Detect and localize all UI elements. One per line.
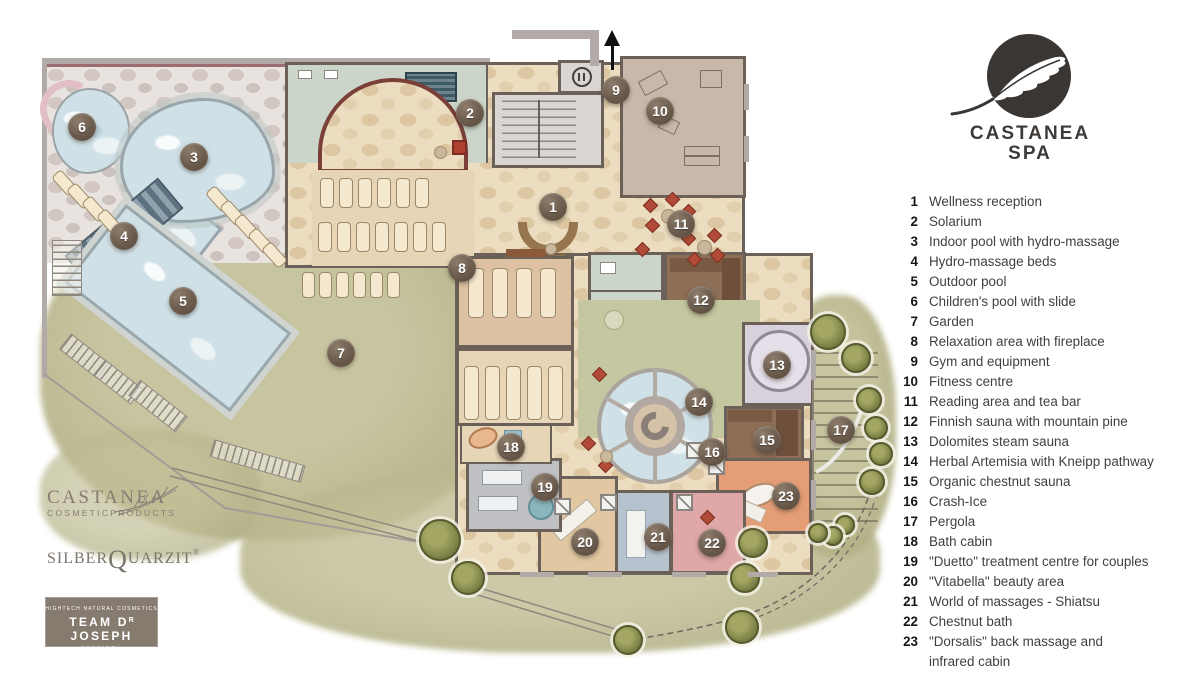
legend-item-label: Reading area and tea bar [929,392,1081,412]
plan-marker-18: 18 [497,433,525,461]
legend-item-number: 21 [898,592,918,612]
legend-item-21: 21World of massages - Shiatsu [898,592,1193,612]
legend-item-label: Hydro-massage beds [929,252,1056,272]
plan-marker-17: 17 [827,416,855,444]
silber-part1: SILBER [47,550,108,567]
legend-item-1: 1Wellness reception [898,192,1193,212]
registered-mark: ® [193,547,201,557]
legend-item-number: 23 [898,632,918,652]
plan-marker-14: 14 [685,388,713,416]
legend-item-label: Pergola [929,512,975,532]
team-main-suffix: JOSEPH [71,629,133,643]
legend-item-12: 12Finnish sauna with mountain pine [898,412,1193,432]
legend-item-number: 1 [898,192,918,212]
plan-marker-1: 1 [539,193,567,221]
plan-marker-16: 16 [698,438,726,466]
plan-marker-21: 21 [644,523,672,551]
legend-item-number: 19 [898,552,918,572]
plan-marker-23: 23 [772,482,800,510]
silber-part2: UARZIT [128,550,193,567]
plan-markers: 1234567891011121314151617181920212223 [0,0,900,675]
legend-item-18: 18Bath cabin [898,532,1193,552]
legend-item-label: Organic chestnut sauna [929,472,1070,492]
plan-marker-8: 8 [448,254,476,282]
castanea-cosmetics-title: CASTANEA [47,487,167,508]
legend-item-label: "Vitabella" beauty area [929,572,1064,592]
brand-title: CASTANEA SPA [898,124,1162,164]
legend-item-13: 13Dolomites steam sauna [898,432,1193,452]
legend-item-label: Dolomites steam sauna [929,432,1069,452]
legend-item-8: 8Relaxation area with fireplace [898,332,1193,352]
plan-marker-13: 13 [763,351,791,379]
legend-item-number: 2 [898,212,918,232]
castanea-cosmetics-logo: CASTANEA [47,487,167,509]
plan-marker-10: 10 [646,97,674,125]
legend-item-11: 11Reading area and tea bar [898,392,1193,412]
legend-item-14: 14Herbal Artemisia with Kneipp pathway [898,452,1193,472]
team-main-sup: R [129,617,134,624]
legend-item-label: Crash-Ice [929,492,987,512]
plan-marker-20: 20 [571,528,599,556]
castanea-cosmetics-subtitle-text: COSMETICPRODUCTS [47,508,176,518]
legend-item-6: 6Children's pool with slide [898,292,1193,312]
plan-marker-22: 22 [698,529,726,557]
legend-item-label: Fitness centre [929,372,1013,392]
legend-item-label: Bath cabin [929,532,992,552]
legend-item-17: 17Pergola [898,512,1193,532]
legend-item-label: Indoor pool with hydro-massage [929,232,1120,252]
legend-item-number: 3 [898,232,918,252]
brand-line1: CASTANEA [970,123,1090,144]
legend-item-9: 9Gym and equipment [898,352,1193,372]
castanea-spa-logo [944,30,1114,126]
legend-item-label: Chestnut bath [929,612,1012,632]
legend-item-number: 11 [898,392,918,412]
team-main-prefix: TEAM D [69,615,128,629]
legend-item-label: World of massages - Shiatsu [929,592,1100,612]
legend-item-number: 17 [898,512,918,532]
legend-item-number: 14 [898,452,918,472]
legend-item-19: 19"Duetto" treatment centre for couples [898,552,1193,572]
plan-marker-6: 6 [68,113,96,141]
plan-marker-12: 12 [687,286,715,314]
legend-item-15: 15Organic chestnut sauna [898,472,1193,492]
plan-marker-4: 4 [110,222,138,250]
legend-item-label: Outdoor pool [929,272,1006,292]
legend-item-22: 22Chestnut bath [898,612,1193,632]
legend-item-20: 20"Vitabella" beauty area [898,572,1193,592]
brand-line2: SPA [1008,143,1052,164]
plan-marker-15: 15 [753,426,781,454]
legend-item-number: 16 [898,492,918,512]
legend-item-label: Relaxation area with fireplace [929,332,1105,352]
legend-item-label: Finnish sauna with mountain pine [929,412,1128,432]
legend-item-3: 3Indoor pool with hydro-massage [898,232,1193,252]
legend-item-number: 5 [898,272,918,292]
legend-list: 1Wellness reception2Solarium3Indoor pool… [898,192,1193,672]
legend-item-label: Herbal Artemisia with Kneipp pathway [929,452,1154,472]
team-line3: SÜDTIROL [45,646,158,652]
legend-item-2: 2Solarium [898,212,1193,232]
legend-item-label: "Dorsalis" back massage andinfrared cabi… [929,632,1103,672]
legend-item-label: Children's pool with slide [929,292,1076,312]
legend-item-number: 8 [898,332,918,352]
legend-item-label: Gym and equipment [929,352,1050,372]
legend-item-number: 22 [898,612,918,632]
legend-item-number: 13 [898,432,918,452]
legend-item-number: 10 [898,372,918,392]
legend-item-number: 9 [898,352,918,372]
silber-q: Q [108,545,128,574]
castanea-cosmetics-subtitle: COSMETICPRODUCTS [47,508,176,518]
team-dr-joseph-logo: HIGHTECH NATURAL COSMETICS TEAM DR JOSEP… [45,597,158,647]
legend-item-23: 23"Dorsalis" back massage andinfrared ca… [898,632,1193,672]
legend-item-10: 10Fitness centre [898,372,1193,392]
legend-item-label: Solarium [929,212,982,232]
legend-item-number: 20 [898,572,918,592]
legend-item-4: 4Hydro-massage beds [898,252,1193,272]
silberquarzit-logo: SILBERQUARZIT® [47,547,200,568]
legend-item-number: 7 [898,312,918,332]
legend-item-5: 5Outdoor pool [898,272,1193,292]
plan-marker-9: 9 [602,76,630,104]
plan-marker-7: 7 [327,339,355,367]
spa-floor-plan-page: 1234567891011121314151617181920212223 CA… [0,0,1200,675]
plan-marker-3: 3 [180,143,208,171]
plan-marker-11: 11 [667,210,695,238]
plan-marker-2: 2 [456,99,484,127]
legend-item-number: 18 [898,532,918,552]
legend-item-label: Wellness reception [929,192,1042,212]
legend-item-number: 15 [898,472,918,492]
plan-marker-19: 19 [531,473,559,501]
legend-item-number: 4 [898,252,918,272]
team-line1: HIGHTECH NATURAL COSMETICS [45,606,158,612]
legend-item-number: 12 [898,412,918,432]
legend-item-label: "Duetto" treatment centre for couples [929,552,1148,572]
legend-item-16: 16Crash-Ice [898,492,1193,512]
team-main: TEAM DR JOSEPH [45,615,158,643]
plan-marker-5: 5 [169,287,197,315]
legend-item-label: Garden [929,312,974,332]
legend-item-7: 7Garden [898,312,1193,332]
legend-item-number: 6 [898,292,918,312]
floor-plan: 1234567891011121314151617181920212223 [0,0,900,675]
